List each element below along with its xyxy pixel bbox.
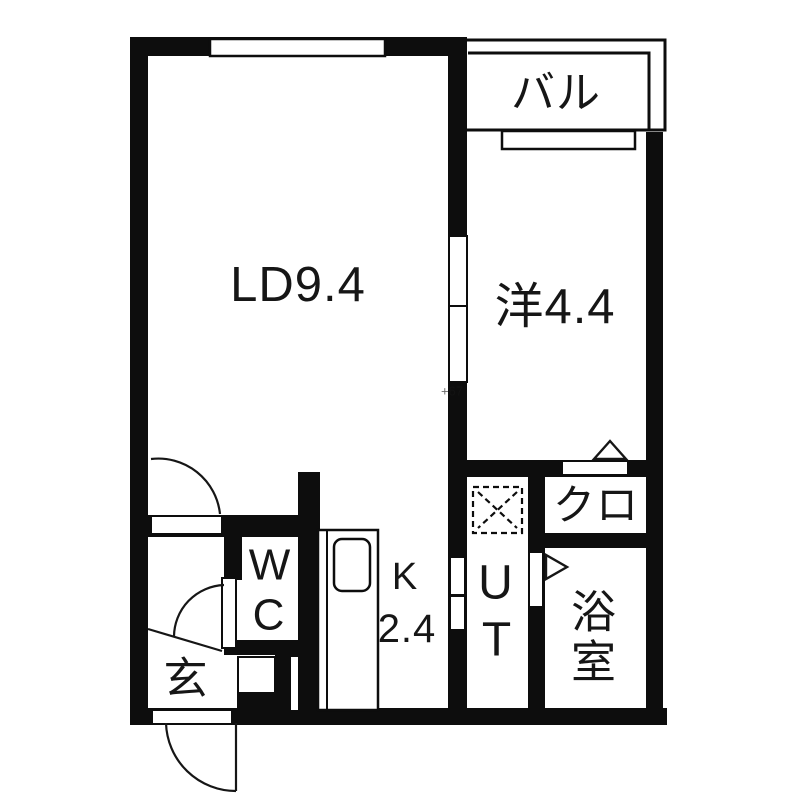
room-label-bathroom-line2: 室 — [571, 637, 617, 688]
watermark-text: +67 — [441, 384, 463, 399]
wc-door-leaf — [222, 578, 236, 648]
wall-wc-left — [224, 537, 242, 580]
bath-door-panel — [529, 552, 543, 607]
room-label-toilet-line2: C — [253, 591, 286, 640]
closet-sliding-door — [562, 461, 628, 475]
entrance-step-line — [148, 629, 222, 651]
shoe-cabinet — [238, 657, 275, 693]
door-swing-arc-ld — [151, 459, 220, 514]
door-direction-marker-bath — [546, 555, 567, 579]
door-direction-marker-closet — [594, 441, 626, 459]
floorplan-page: LD9.4 洋4.4 バル クロ 浴 室 U T W C 玄 K 2.4 +67 — [0, 0, 799, 800]
wall-shoe-cabinet-base — [237, 693, 275, 712]
entrance-threshold — [152, 710, 232, 724]
wall-right — [646, 132, 663, 725]
sliding-door-panel-upper — [449, 236, 467, 306]
room-label-western-room: 洋4.4 — [494, 280, 615, 334]
floorplan-drawing: LD9.4 洋4.4 バル クロ 浴 室 U T W C 玄 K 2.4 +67 — [0, 0, 799, 800]
room-label-toilet-line1: W — [249, 541, 292, 590]
door-swing-arc-entrance — [166, 723, 236, 791]
door-swing-arc-wc — [174, 585, 224, 637]
wall-wc-bottom — [224, 640, 320, 655]
room-label-kitchen-line2: 2.4 — [378, 607, 437, 651]
room-label-living-dining: LD9.4 — [230, 258, 366, 312]
room-label-closet: クロ — [553, 482, 639, 529]
sliding-door-panel-lower — [449, 306, 467, 382]
room-label-bathroom-line1: 浴 — [571, 587, 617, 638]
wall-kitchen-bar — [298, 472, 320, 712]
room-label-utility-line2: T — [482, 614, 512, 667]
window-western — [502, 131, 635, 149]
wall-east-horizontal — [448, 460, 663, 477]
wall-closet-bath — [528, 533, 646, 548]
room-label-kitchen-line1: K — [392, 556, 418, 598]
ut-west-door-panel-upper — [450, 557, 465, 595]
room-label-entrance: 玄 — [164, 655, 209, 704]
washing-machine-symbol — [473, 487, 522, 533]
wall-left — [130, 37, 148, 725]
room-label-utility-line1: U — [478, 557, 514, 610]
ut-west-door-panel-lower — [450, 596, 465, 630]
room-label-balcony: バル — [511, 69, 601, 118]
kitchen-counter — [318, 530, 378, 710]
window-ld — [210, 39, 385, 56]
wall-gap-strip — [291, 657, 298, 710]
ld-doorway-opening — [151, 516, 222, 534]
